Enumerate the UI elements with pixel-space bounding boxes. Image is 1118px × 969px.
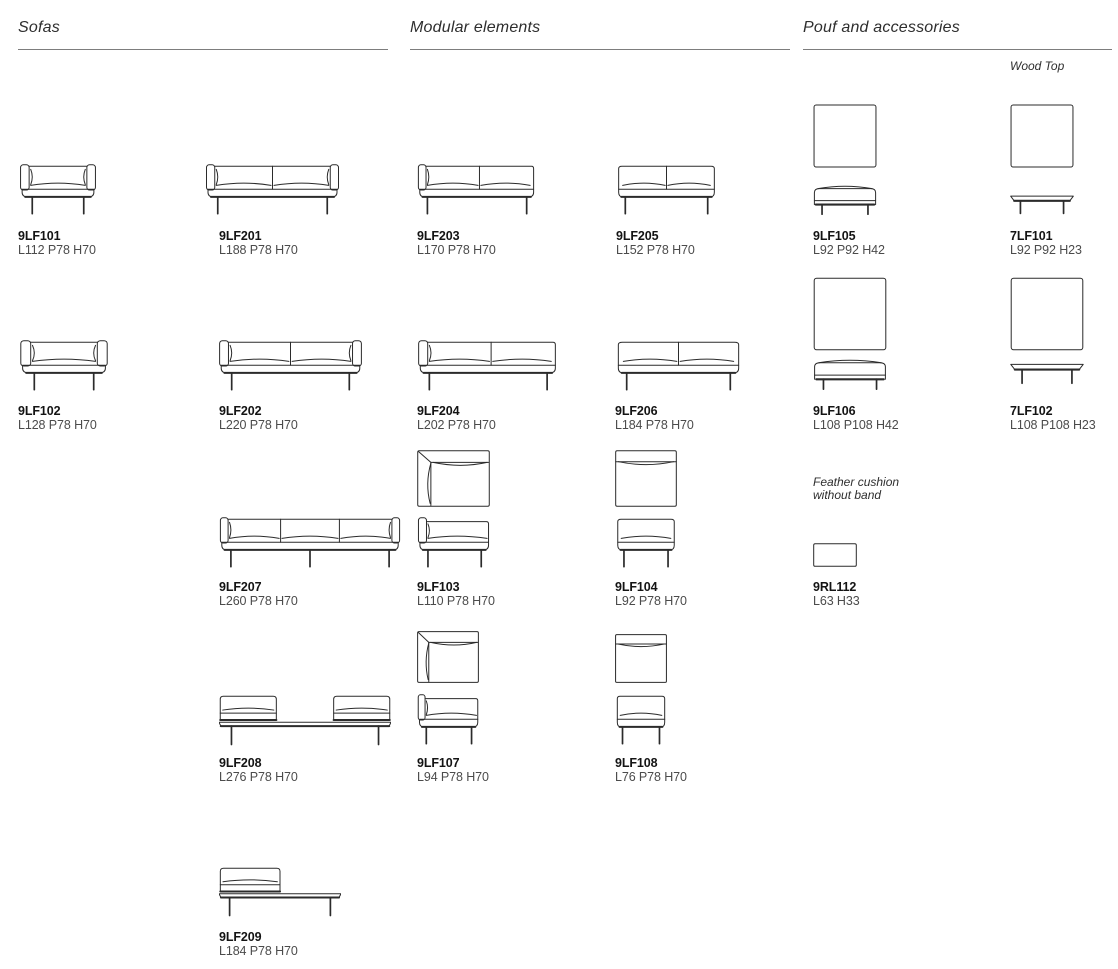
modular-left-arm-drawing-9lf203 — [417, 164, 535, 216]
product-code: 9LF209 — [219, 931, 298, 944]
catalog-page: Sofas Modular elements Pouf and accessor… — [0, 0, 1118, 969]
product-label-9lf204: 9LF204 L202 P78 H70 — [417, 405, 496, 432]
product-label-9lf102: 9LF102 L128 P78 H70 — [18, 405, 97, 432]
central-element-plan-drawing-9lf104 — [615, 450, 677, 507]
bench-two-seats-drawing-9lf208 — [219, 694, 391, 746]
product-dims: L92 P92 H42 — [813, 244, 885, 257]
product-dims: L184 P78 H70 — [615, 419, 694, 432]
product-code: 9LF206 — [615, 405, 694, 418]
product-label-9lf108: 9LF108 L76 P78 H70 — [615, 757, 687, 784]
product-dims: L276 P78 H70 — [219, 771, 298, 784]
section-title-pouf-accessories: Pouf and accessories — [803, 19, 960, 37]
armchair-front-drawing-9lf101 — [19, 164, 97, 216]
product-code: 9LF204 — [417, 405, 496, 418]
section-underline-sofas — [18, 49, 388, 50]
product-dims: L112 P78 H70 — [18, 244, 96, 257]
product-label-9lf103: 9LF103 L110 P78 H70 — [417, 581, 495, 608]
product-code: 7LF102 — [1010, 405, 1096, 418]
corner-element-plan-drawing-9lf107 — [417, 631, 479, 683]
product-code: 9LF107 — [417, 757, 489, 770]
sofa-three-seat-drawing-9lf207 — [219, 517, 401, 569]
cushion-drawing-9rl112 — [813, 543, 857, 567]
product-dims: L110 P78 H70 — [417, 595, 495, 608]
feather-cushion-note: Feather cushion without band — [813, 476, 899, 502]
section-title-modular-elements: Modular elements — [410, 19, 540, 37]
product-label-9lf201: 9LF201 L188 P78 H70 — [219, 230, 298, 257]
sofa-two-seat-drawing-9lf201 — [205, 164, 340, 216]
product-code: 9LF201 — [219, 230, 298, 243]
product-code: 7LF101 — [1010, 230, 1082, 243]
product-code: 9LF101 — [18, 230, 96, 243]
product-label-9lf206: 9LF206 L184 P78 H70 — [615, 405, 694, 432]
product-code: 9LF208 — [219, 757, 298, 770]
wood-top-label: Wood Top — [1010, 59, 1064, 73]
product-dims: L94 P78 H70 — [417, 771, 489, 784]
section-title-sofas: Sofas — [18, 19, 60, 37]
product-code: 9LF203 — [417, 230, 496, 243]
product-label-9lf208: 9LF208 L276 P78 H70 — [219, 757, 298, 784]
product-label-9lf202: 9LF202 L220 P78 H70 — [219, 405, 298, 432]
product-dims: L63 H33 — [813, 595, 860, 608]
product-label-9lf101: 9LF101 L112 P78 H70 — [18, 230, 96, 257]
wood-top-plan-drawing-7lf101 — [1010, 104, 1074, 168]
armchair-front-drawing-9lf102 — [19, 340, 109, 392]
corner-element-front-drawing-9lf107 — [417, 694, 479, 746]
product-dims: L188 P78 H70 — [219, 244, 298, 257]
product-label-7lf101: 7LF101 L92 P92 H23 — [1010, 230, 1082, 257]
product-code: 9LF202 — [219, 405, 298, 418]
section-underline-pouf-accessories — [803, 49, 1112, 50]
product-label-9lf106: 9LF106 L108 P108 H42 — [813, 405, 899, 432]
product-label-9lf104: 9LF104 L92 P78 H70 — [615, 581, 687, 608]
central-element-front-drawing-9lf108 — [615, 694, 667, 746]
corner-element-plan-drawing-9lf103 — [417, 450, 490, 507]
product-label-9lf203: 9LF203 L170 P78 H70 — [417, 230, 496, 257]
product-label-9lf205: 9LF205 L152 P78 H70 — [616, 230, 695, 257]
product-label-7lf102: 7LF102 L108 P108 H23 — [1010, 405, 1096, 432]
product-label-9lf107: 9LF107 L94 P78 H70 — [417, 757, 489, 784]
product-dims: L170 P78 H70 — [417, 244, 496, 257]
product-dims: L108 P108 H23 — [1010, 419, 1096, 432]
product-label-9lf207: 9LF207 L260 P78 H70 — [219, 581, 298, 608]
seat-with-side-table-drawing-9lf209 — [219, 866, 341, 917]
product-code: 9LF104 — [615, 581, 687, 594]
section-underline-modular-elements — [410, 49, 790, 50]
product-code: 9LF102 — [18, 405, 97, 418]
central-element-front-drawing-9lf104 — [615, 517, 677, 569]
pouf-plan-drawing-9lf105 — [813, 104, 877, 168]
product-dims: L260 P78 H70 — [219, 595, 298, 608]
product-dims: L202 P78 H70 — [417, 419, 496, 432]
product-code: 9LF105 — [813, 230, 885, 243]
product-code: 9LF207 — [219, 581, 298, 594]
product-dims: L108 P108 H42 — [813, 419, 899, 432]
product-dims: L220 P78 H70 — [219, 419, 298, 432]
product-label-9lf105: 9LF105 L92 P92 H42 — [813, 230, 885, 257]
modular-left-arm-drawing-9lf204 — [417, 340, 557, 392]
product-code: 9LF103 — [417, 581, 495, 594]
pouf-plan-drawing-9lf106 — [813, 277, 887, 351]
pouf-side-drawing-9lf106 — [813, 357, 887, 390]
product-label-9lf209: 9LF209 L184 P78 H70 — [219, 931, 298, 958]
product-dims: L92 P92 H23 — [1010, 244, 1082, 257]
corner-element-front-drawing-9lf103 — [417, 517, 490, 569]
product-dims: L128 P78 H70 — [18, 419, 97, 432]
product-label-9rl112: 9RL112 L63 H33 — [813, 581, 860, 608]
feather-cushion-note-line2: without band — [813, 489, 899, 502]
product-code: 9LF108 — [615, 757, 687, 770]
sofa-two-seat-drawing-9lf202 — [218, 340, 363, 392]
product-dims: L76 P78 H70 — [615, 771, 687, 784]
product-dims: L184 P78 H70 — [219, 945, 298, 958]
product-dims: L152 P78 H70 — [616, 244, 695, 257]
wood-top-side-drawing-7lf101 — [1010, 193, 1074, 215]
product-code: 9RL112 — [813, 581, 860, 594]
modular-armless-drawing-9lf206 — [615, 340, 742, 392]
product-code: 9LF205 — [616, 230, 695, 243]
wood-top-plan-drawing-7lf102 — [1010, 277, 1084, 351]
pouf-side-drawing-9lf105 — [813, 183, 877, 215]
wood-top-side-drawing-7lf102 — [1010, 361, 1084, 385]
modular-armless-drawing-9lf205 — [616, 164, 717, 216]
product-code: 9LF106 — [813, 405, 899, 418]
central-element-plan-drawing-9lf108 — [615, 634, 667, 683]
product-dims: L92 P78 H70 — [615, 595, 687, 608]
